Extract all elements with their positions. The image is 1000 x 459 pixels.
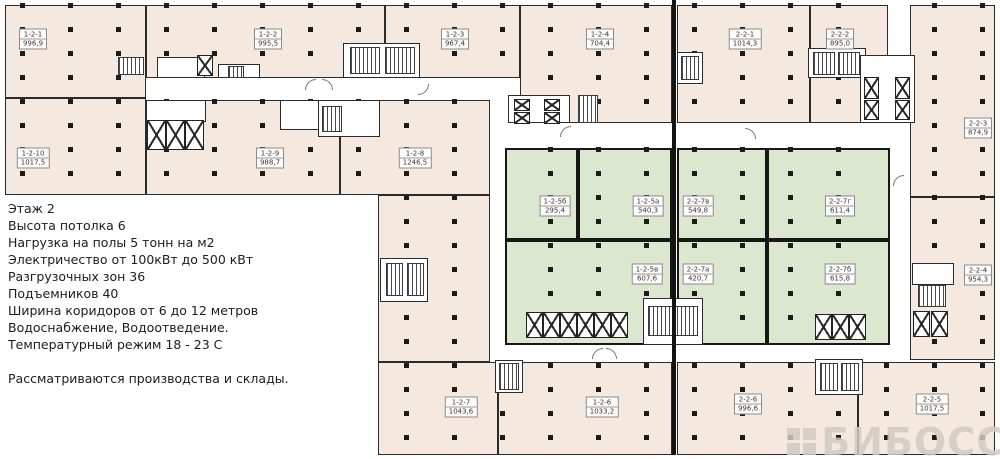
room-area-value: 295,4 [541,207,570,216]
column-marker [932,219,937,224]
column-marker [404,195,409,200]
column-marker [20,99,25,104]
column-marker [356,3,361,8]
column-marker [932,387,937,392]
column-marker [884,411,889,416]
column-marker [932,363,937,368]
column-marker [404,411,409,416]
room-code: 1-2-5в [633,265,662,275]
column-marker [20,123,25,128]
column-marker [20,3,25,8]
column-marker [116,51,121,56]
room-area-value: 1017,5 [18,159,49,168]
column-marker [932,171,937,176]
column-marker [548,363,553,368]
column-marker [788,267,793,272]
column-marker [932,51,937,56]
elevator-shaft-icon [560,312,577,338]
column-marker [260,123,265,128]
room-area-value: 704,4 [587,40,613,49]
column-marker [596,291,601,296]
column-marker [116,27,121,32]
column-marker [452,219,457,224]
room-code: 1-2-2 [255,30,281,40]
column-marker [68,99,73,104]
room-label: 2-2-2895,0 [826,29,854,50]
column-marker [980,75,985,80]
column-marker [212,171,217,176]
info-line: Нагрузка на полы 5 тонн на м2 [8,234,289,251]
column-marker [212,123,217,128]
room-label: 1-2-9988,7 [256,148,284,169]
column-marker [788,243,793,248]
column-marker [596,267,601,272]
column-marker [116,75,121,80]
column-marker [548,51,553,56]
room-code: 1-2-7 [446,398,477,408]
column-marker [788,99,793,104]
room-label: 1-2-5а540,3 [633,196,664,217]
elevator-shaft-icon [931,311,948,337]
column-marker [404,99,409,104]
column-marker [404,363,409,368]
column-marker [740,147,745,152]
column-marker [452,99,457,104]
room-label: 2-2-51017,5 [916,394,949,415]
column-marker [788,219,793,224]
room-label: 2-2-4954,3 [964,265,992,286]
building-divider-wall [672,0,676,455]
info-line: Водоснабжение, Водоотведение. [8,319,289,336]
room-area-value: 996,6 [735,405,761,414]
room-code: 1-2-3 [442,30,468,40]
column-marker [692,387,697,392]
room-label: 1-2-61033,2 [586,397,619,418]
column-marker [404,435,409,440]
info-line: Ширина коридоров от 6 до 12 метров [8,302,289,319]
info-line: Этаж 2 [8,200,289,217]
column-marker [692,171,697,176]
room-area-value: 607,6 [633,275,662,284]
room-code: 2-2-7в [684,197,713,207]
column-marker [404,219,409,224]
elevator-shaft-icon [895,77,910,99]
column-marker [68,27,73,32]
column-marker [788,363,793,368]
room-code: 2-2-2 [827,30,853,40]
column-marker [548,267,553,272]
column-marker [596,363,601,368]
elevator-shaft-icon [197,55,213,76]
column-marker [836,219,841,224]
column-marker [452,339,457,344]
elevator-shaft-icon [185,120,204,150]
room-code: 2-2-7г [826,197,854,207]
column-marker [788,51,793,56]
column-marker [932,123,937,128]
column-marker [452,291,457,296]
column-marker [404,243,409,248]
column-marker [740,363,745,368]
room-area-value: 988,7 [257,159,283,168]
column-marker [116,147,121,152]
column-marker [68,3,73,8]
column-marker [404,387,409,392]
room-label: 2-2-3874,9 [964,118,992,139]
column-marker [740,195,745,200]
room-code: 1-2-6 [587,398,618,408]
room-code: 2-2-4 [965,266,991,276]
column-marker [836,411,841,416]
column-marker [452,435,457,440]
column-marker [452,51,457,56]
elevator-shaft-icon [526,312,543,338]
column-marker [404,315,409,320]
column-marker [596,435,601,440]
biboss-watermark: БИБОСС [787,420,1000,459]
room-code: 2-2-5 [917,395,948,405]
column-marker [500,51,505,56]
stairs-icon [838,52,860,75]
room-area-value: 996,9 [20,40,46,49]
column-marker [932,147,937,152]
column-marker [788,3,793,8]
column-marker [548,3,553,8]
room-area-value: 549,8 [684,207,713,216]
column-marker [212,27,217,32]
column-marker [356,171,361,176]
column-marker [548,219,553,224]
column-marker [212,3,217,8]
info-line: Высота потолка 6 [8,217,289,234]
column-marker [980,291,985,296]
stairs-icon [820,363,838,391]
room-code: 2-2-7б [826,265,855,275]
room-code: 1-2-4 [587,30,613,40]
room-area-value: 1246,5 [400,159,431,168]
column-marker [740,99,745,104]
column-marker [980,339,985,344]
column-marker [20,51,25,56]
column-marker [644,243,649,248]
column-marker [68,147,73,152]
column-marker [500,411,505,416]
stairs-icon [407,263,424,296]
room-code: 1-2-5а [634,197,663,207]
column-marker [260,99,265,104]
column-marker [404,27,409,32]
column-marker [980,3,985,8]
column-marker [740,75,745,80]
column-marker [740,267,745,272]
column-marker [596,51,601,56]
column-marker [548,435,553,440]
room-code: 1-2-1 [20,30,46,40]
column-marker [692,147,697,152]
elevator-shaft-icon [611,312,628,338]
column-marker [740,219,745,224]
column-marker [500,27,505,32]
elevator-shaft-icon [864,100,879,120]
column-marker [548,147,553,152]
column-marker [740,171,745,176]
column-marker [644,387,649,392]
column-marker [836,243,841,248]
room-label: 1-2-2995,5 [254,29,282,50]
room-label: 1-2-4704,4 [586,29,614,50]
column-marker [692,99,697,104]
column-marker [116,3,121,8]
room-code: 2-2-7а [684,265,713,275]
column-marker [980,411,985,416]
room-label: 2-2-7б615,8 [825,264,856,285]
column-marker [788,75,793,80]
column-marker [980,147,985,152]
column-marker [68,171,73,176]
column-marker [932,75,937,80]
column-marker [308,147,313,152]
column-marker [788,411,793,416]
service-room [912,263,954,285]
column-marker [788,27,793,32]
column-marker [164,27,169,32]
stairs-icon [322,106,342,132]
column-marker [980,171,985,176]
column-marker [980,387,985,392]
column-marker [596,243,601,248]
stairs-icon [499,363,519,390]
room-code: 1-2-8 [400,149,431,159]
stairs-icon [386,263,403,296]
column-marker [740,435,745,440]
column-marker [836,147,841,152]
column-marker [452,243,457,248]
stairs-icon [681,56,699,80]
column-marker [164,51,169,56]
column-marker [980,51,985,56]
column-marker [308,171,313,176]
column-marker [788,195,793,200]
room-label: 1-2-5б295,4 [540,196,571,217]
elevator-shaft-icon [577,312,594,338]
column-marker [452,363,457,368]
room-label: 1-2-71043,6 [445,397,478,418]
elevator-shaft-icon [514,99,530,111]
column-marker [788,147,793,152]
elevator-shaft-icon [166,120,185,150]
column-marker [452,123,457,128]
column-marker [260,3,265,8]
column-marker [740,387,745,392]
column-marker [452,315,457,320]
room-label: 1-2-101017,5 [17,148,50,169]
column-marker [740,51,745,56]
column-marker [644,3,649,8]
room-area-value: 874,9 [965,129,991,138]
column-marker [68,51,73,56]
room-area-value: 1017,5 [917,405,948,414]
room-label: 2-2-7г611,4 [825,196,855,217]
column-marker [692,291,697,296]
column-marker [932,339,937,344]
room-label: 2-2-7а420,7 [683,264,714,285]
column-marker [20,75,25,80]
floor-plan: 1-2-1996,91-2-2995,51-2-3967,41-2-4704,4… [0,0,1000,459]
column-marker [548,27,553,32]
elevator-shaft-icon [544,99,560,111]
column-marker [884,387,889,392]
column-marker [980,27,985,32]
stairs-icon [385,47,415,74]
column-marker [548,75,553,80]
stairs-icon [118,57,144,75]
column-marker [932,195,937,200]
column-marker [644,75,649,80]
room-area-value: 615,8 [826,275,855,284]
column-marker [692,411,697,416]
room-code: 2-2-6 [735,395,761,405]
room-label: 1-2-1996,9 [19,29,47,50]
column-marker [596,147,601,152]
column-marker [692,363,697,368]
elevator-shaft-icon [913,311,930,337]
room-code: 2-2-3 [965,119,991,129]
column-marker [644,27,649,32]
info-line: Электричество от 100кВт до 500 кВт [8,251,289,268]
info-line: Подъемников 40 [8,285,289,302]
elevator-shaft-icon [147,120,166,150]
column-marker [164,171,169,176]
column-marker [212,147,217,152]
info-line: Температурный режим 18 - 23 С [8,336,289,353]
watermark-text: БИБОСС [821,420,1000,459]
floor-info-text: Этаж 2Высота потолка 6Нагрузка на полы 5… [8,200,289,387]
room-area-value: 967,4 [442,40,468,49]
elevator-shaft-icon [895,100,910,120]
room-label: 2-2-7в549,8 [683,196,714,217]
stairs-icon [578,95,598,123]
elevator-shaft-icon [815,314,832,340]
column-marker [596,171,601,176]
column-marker [20,171,25,176]
column-marker [548,291,553,296]
room-area-value: 1033,2 [587,408,618,417]
column-marker [692,3,697,8]
info-line: Разгрузочных зон 36 [8,268,289,285]
column-marker [596,387,601,392]
column-marker [596,75,601,80]
column-marker [644,435,649,440]
room-area-value: 540,3 [634,207,663,216]
column-marker [260,171,265,176]
column-marker [932,99,937,104]
column-marker [788,171,793,176]
stairs-icon [350,47,380,74]
column-marker [644,363,649,368]
column-marker [404,171,409,176]
elevator-shaft-icon [594,312,611,338]
elevator-shaft-icon [864,77,879,99]
stairs-icon [813,52,835,75]
column-marker [836,99,841,104]
column-marker [836,3,841,8]
column-marker [788,291,793,296]
column-marker [932,243,937,248]
service-room [146,100,206,122]
column-marker [788,387,793,392]
elevator-shaft-icon [544,112,560,124]
column-marker [452,171,457,176]
column-marker [308,3,313,8]
column-marker [644,291,649,296]
column-marker [692,243,697,248]
column-marker [260,51,265,56]
column-marker [308,27,313,32]
column-marker [116,171,121,176]
column-marker [740,315,745,320]
column-marker [404,339,409,344]
column-marker [788,315,793,320]
column-marker [692,27,697,32]
room-label: 1-2-3967,4 [441,29,469,50]
column-marker [548,387,553,392]
room-code: 2-2-1 [730,30,761,40]
column-marker [548,171,553,176]
column-marker [980,363,985,368]
column-marker [644,147,649,152]
column-marker [116,123,121,128]
column-marker [596,3,601,8]
column-marker [980,195,985,200]
column-marker [932,27,937,32]
elevator-shaft-icon [849,314,866,340]
column-marker [644,219,649,224]
biboss-logo-icon [787,428,816,455]
column-marker [596,219,601,224]
column-marker [500,435,505,440]
column-marker [452,3,457,8]
column-marker [740,291,745,296]
stairs-icon [841,363,859,391]
column-marker [452,267,457,272]
room-code: 1-2-10 [18,149,49,159]
column-marker [836,291,841,296]
column-marker [644,411,649,416]
column-marker [692,219,697,224]
column-marker [980,315,985,320]
column-marker [932,3,937,8]
room-area-value: 611,4 [826,207,854,216]
room-area-value: 954,3 [965,276,991,285]
column-marker [452,147,457,152]
room-code: 1-2-9 [257,149,283,159]
stairs-icon [918,285,946,307]
room-area-value: 1043,6 [446,408,477,417]
column-marker [836,171,841,176]
column-marker [404,3,409,8]
column-marker [596,195,601,200]
column-marker [500,3,505,8]
elevator-shaft-icon [514,112,530,124]
room-label: 2-2-11014,3 [729,29,762,50]
column-marker [116,99,121,104]
column-marker [548,243,553,248]
column-marker [548,411,553,416]
room-code: 1-2-5б [541,197,570,207]
column-marker [164,3,169,8]
room-label: 1-2-5в607,6 [632,264,663,285]
elevator-shaft-icon [832,314,849,340]
